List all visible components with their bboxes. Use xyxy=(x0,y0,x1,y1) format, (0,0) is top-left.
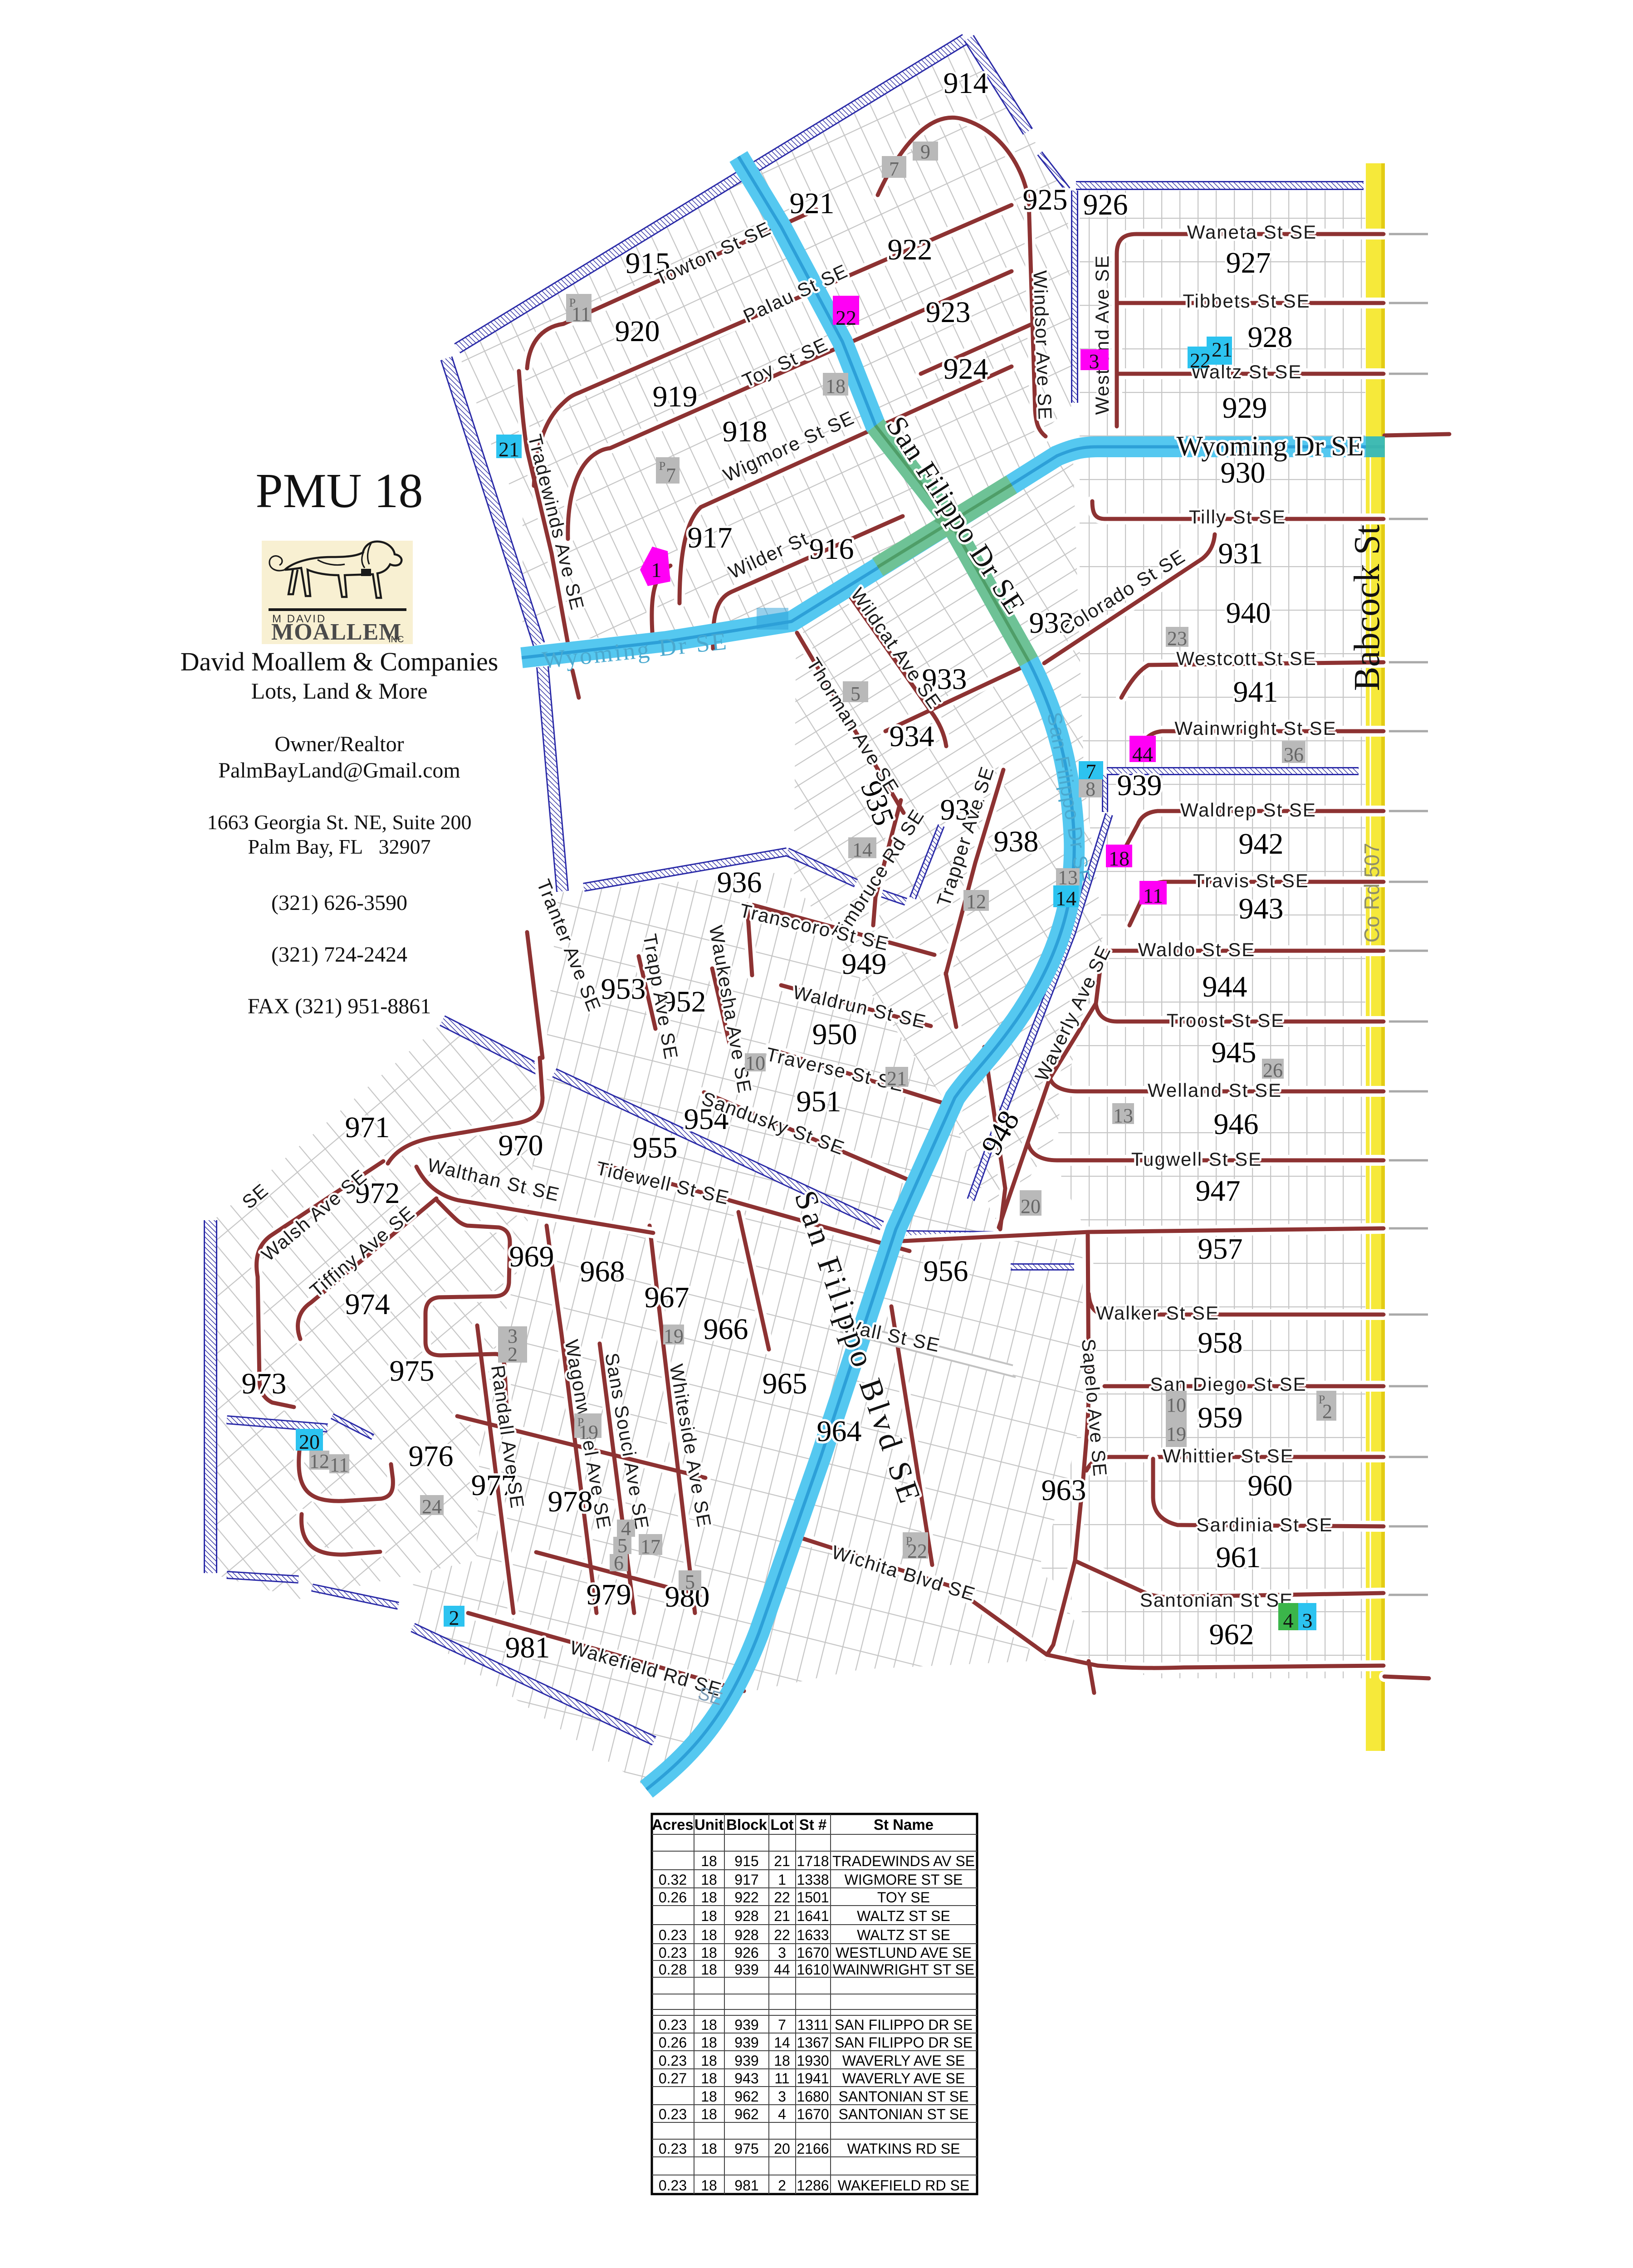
svg-text:2166: 2166 xyxy=(797,2141,829,2157)
svg-text:18: 18 xyxy=(701,1945,717,1961)
svg-text:0.28: 0.28 xyxy=(659,1961,687,1978)
svg-text:939: 939 xyxy=(734,2034,758,2051)
svg-text:18: 18 xyxy=(701,1889,717,1906)
svg-text:962: 962 xyxy=(734,2088,758,2105)
svg-text:1680: 1680 xyxy=(797,2088,829,2105)
svg-text:21: 21 xyxy=(1212,338,1232,361)
svg-text:1633: 1633 xyxy=(797,1927,829,1943)
svg-text:Tugwell St SE: Tugwell St SE xyxy=(1131,1149,1262,1170)
svg-text:Unit: Unit xyxy=(694,1816,724,1833)
svg-text:Whittier St SE: Whittier St SE xyxy=(1163,1445,1294,1466)
svg-text:973: 973 xyxy=(242,1367,287,1400)
svg-text:4: 4 xyxy=(1283,1609,1294,1632)
svg-text:18: 18 xyxy=(701,2088,717,2105)
svg-text:WAINWRIGHT ST SE: WAINWRIGHT ST SE xyxy=(833,1961,974,1978)
svg-text:Lots, Land & More: Lots, Land & More xyxy=(251,678,428,704)
svg-text:13: 13 xyxy=(1113,1105,1133,1127)
svg-text:1501: 1501 xyxy=(797,1889,829,1906)
svg-text:2: 2 xyxy=(778,2177,786,2194)
svg-text:14: 14 xyxy=(852,839,872,861)
svg-text:969: 969 xyxy=(509,1240,554,1273)
svg-text:Walker St SE: Walker St SE xyxy=(1096,1302,1219,1324)
svg-text:24: 24 xyxy=(422,1496,442,1518)
svg-text:1610: 1610 xyxy=(797,1961,829,1978)
svg-text:1670: 1670 xyxy=(797,1945,829,1961)
svg-text:0.23: 0.23 xyxy=(659,2017,687,2033)
svg-text:Lot: Lot xyxy=(770,1816,793,1833)
svg-text:0.23: 0.23 xyxy=(659,2177,687,2194)
svg-text:1641: 1641 xyxy=(797,1908,829,1924)
svg-text:957: 957 xyxy=(1198,1232,1243,1266)
svg-text:36: 36 xyxy=(1284,743,1304,766)
svg-text:928: 928 xyxy=(734,1927,758,1943)
svg-text:MOALLEM: MOALLEM xyxy=(271,619,401,645)
svg-text:915: 915 xyxy=(734,1853,758,1869)
svg-text:943: 943 xyxy=(734,2070,758,2087)
svg-text:Travis St SE: Travis St SE xyxy=(1193,870,1309,891)
svg-text:942: 942 xyxy=(1239,827,1284,860)
svg-text:WESTLUND AVE SE: WESTLUND AVE SE xyxy=(836,1945,972,1961)
svg-text:10: 10 xyxy=(745,1052,765,1074)
svg-text:961: 961 xyxy=(1216,1541,1261,1574)
svg-text:2: 2 xyxy=(1322,1400,1332,1422)
svg-text:11: 11 xyxy=(330,1454,349,1476)
svg-text:FAX (321) 951-8861: FAX (321) 951-8861 xyxy=(248,994,431,1018)
svg-text:22: 22 xyxy=(1190,349,1211,372)
svg-text:0.26: 0.26 xyxy=(659,2034,687,2051)
svg-text:21: 21 xyxy=(774,1908,790,1924)
svg-text:981: 981 xyxy=(734,2177,758,2194)
svg-text:22: 22 xyxy=(774,1889,790,1906)
svg-text:0.23: 0.23 xyxy=(659,2106,687,2122)
svg-text:18: 18 xyxy=(701,2017,717,2033)
svg-text:Waneta St SE: Waneta St SE xyxy=(1187,221,1317,243)
svg-text:P: P xyxy=(659,459,665,473)
svg-text:940: 940 xyxy=(1226,596,1271,630)
svg-text:955: 955 xyxy=(633,1131,678,1164)
svg-text:1: 1 xyxy=(651,558,662,582)
svg-text:926: 926 xyxy=(1083,188,1128,221)
svg-text:1338: 1338 xyxy=(797,1872,829,1888)
svg-text:5: 5 xyxy=(851,683,861,705)
svg-text:2: 2 xyxy=(449,1606,460,1629)
svg-text:938: 938 xyxy=(994,825,1039,858)
svg-text:951: 951 xyxy=(797,1085,841,1118)
svg-text:WAVERLY AVE SE: WAVERLY AVE SE xyxy=(842,2053,965,2069)
svg-text:928: 928 xyxy=(734,1908,758,1924)
svg-text:19: 19 xyxy=(578,1421,598,1443)
svg-text:0.23: 0.23 xyxy=(659,2053,687,2069)
svg-text:SANTONIAN ST SE: SANTONIAN ST SE xyxy=(839,2106,969,2122)
svg-text:Owner/Realtor: Owner/Realtor xyxy=(274,732,404,756)
svg-text:3: 3 xyxy=(778,2088,786,2105)
svg-text:SAN FILIPPO DR SE: SAN FILIPPO DR SE xyxy=(835,2034,973,2051)
svg-text:966: 966 xyxy=(704,1313,748,1346)
svg-text:971: 971 xyxy=(345,1111,390,1144)
svg-text:26: 26 xyxy=(1263,1059,1283,1081)
svg-text:18: 18 xyxy=(701,2106,717,2122)
svg-text:18: 18 xyxy=(701,1961,717,1978)
svg-text:917: 917 xyxy=(688,521,733,554)
svg-text:18: 18 xyxy=(701,2034,717,2051)
svg-text:18: 18 xyxy=(701,1908,717,1924)
svg-text:934: 934 xyxy=(890,720,934,753)
svg-text:44: 44 xyxy=(774,1961,790,1978)
svg-text:WALTZ ST SE: WALTZ ST SE xyxy=(857,1908,950,1924)
svg-text:1: 1 xyxy=(778,1872,786,1888)
svg-text:919: 919 xyxy=(653,380,698,413)
svg-text:960: 960 xyxy=(1248,1469,1293,1502)
svg-text:946: 946 xyxy=(1214,1108,1259,1141)
svg-text:947: 947 xyxy=(1196,1174,1241,1207)
svg-text:0.23: 0.23 xyxy=(659,1927,687,1943)
svg-text:6: 6 xyxy=(614,1552,624,1574)
svg-text:943: 943 xyxy=(1239,892,1284,925)
svg-text:1670: 1670 xyxy=(797,2106,829,2122)
svg-text:2: 2 xyxy=(508,1343,518,1365)
svg-text:23: 23 xyxy=(1167,627,1187,650)
svg-text:Palm Bay, FL 32907: Palm Bay, FL 32907 xyxy=(248,835,430,858)
svg-text:974: 974 xyxy=(345,1288,390,1321)
svg-text:18: 18 xyxy=(701,2053,717,2069)
svg-text:SANTONIAN ST SE: SANTONIAN ST SE xyxy=(839,2088,969,2105)
svg-text:8: 8 xyxy=(1085,778,1095,800)
svg-text:21: 21 xyxy=(774,1853,790,1869)
svg-text:921: 921 xyxy=(790,187,835,220)
svg-text:939: 939 xyxy=(734,2017,758,2033)
svg-text:WATKINS RD SE: WATKINS RD SE xyxy=(847,2141,960,2157)
svg-text:22: 22 xyxy=(836,306,856,329)
svg-text:19: 19 xyxy=(664,1325,684,1347)
svg-text:Westlund Ave SE: Westlund Ave SE xyxy=(1091,255,1113,415)
svg-text:PalmBayLand@Gmail.com: PalmBayLand@Gmail.com xyxy=(218,758,460,782)
svg-text:TRADEWINDS AV SE: TRADEWINDS AV SE xyxy=(832,1853,975,1869)
svg-text:1286: 1286 xyxy=(797,2177,829,2194)
svg-text:929: 929 xyxy=(1222,391,1267,425)
svg-text:18: 18 xyxy=(701,1927,717,1943)
svg-text:Troost St SE: Troost St SE xyxy=(1167,1010,1285,1031)
svg-text:(321) 626-3590: (321) 626-3590 xyxy=(271,891,407,915)
svg-text:925: 925 xyxy=(1023,183,1068,216)
svg-text:953: 953 xyxy=(601,973,646,1006)
svg-text:WAVERLY AVE SE: WAVERLY AVE SE xyxy=(842,2070,965,2087)
svg-text:976: 976 xyxy=(409,1440,454,1473)
svg-text:David Moallem & Companies: David Moallem & Companies xyxy=(181,647,499,676)
svg-text:TOY SE: TOY SE xyxy=(877,1889,930,1906)
svg-text:WALTZ ST SE: WALTZ ST SE xyxy=(857,1927,950,1943)
svg-text:978: 978 xyxy=(548,1485,593,1518)
svg-text:979: 979 xyxy=(587,1578,631,1611)
svg-text:18: 18 xyxy=(701,2141,717,2157)
svg-text:967: 967 xyxy=(645,1281,689,1314)
svg-text:Co Rd 507: Co Rd 507 xyxy=(1360,843,1384,943)
svg-text:936: 936 xyxy=(717,866,762,899)
svg-text:18: 18 xyxy=(701,1853,717,1869)
svg-text:22: 22 xyxy=(907,1540,927,1562)
svg-text:13: 13 xyxy=(1058,866,1078,889)
svg-text:Wainwright St SE: Wainwright St SE xyxy=(1174,718,1336,739)
svg-text:Block: Block xyxy=(726,1816,768,1833)
svg-text:11: 11 xyxy=(572,303,591,325)
svg-text:962: 962 xyxy=(1209,1618,1254,1651)
svg-text:965: 965 xyxy=(763,1367,807,1400)
svg-text:Babcock St: Babcock St xyxy=(1347,525,1387,691)
svg-text:18: 18 xyxy=(701,2177,717,2194)
svg-text:0.23: 0.23 xyxy=(659,2141,687,2157)
svg-text:Waldo St SE: Waldo St SE xyxy=(1138,939,1256,960)
svg-text:970: 970 xyxy=(499,1129,543,1162)
svg-text:923: 923 xyxy=(926,296,971,329)
svg-text:18: 18 xyxy=(774,2053,790,2069)
svg-text:916: 916 xyxy=(809,533,854,566)
svg-text:7: 7 xyxy=(778,2017,786,2033)
svg-text:964: 964 xyxy=(817,1415,862,1448)
svg-text:5: 5 xyxy=(685,1571,695,1593)
svg-text:939: 939 xyxy=(734,1961,758,1978)
svg-text:21: 21 xyxy=(499,438,519,461)
svg-text:918: 918 xyxy=(723,415,768,448)
svg-text:956: 956 xyxy=(924,1255,968,1288)
svg-text:927: 927 xyxy=(1226,246,1271,279)
svg-text:975: 975 xyxy=(734,2141,758,2157)
svg-text:Waldrep St SE: Waldrep St SE xyxy=(1180,799,1316,821)
svg-text:3: 3 xyxy=(1089,350,1100,373)
svg-text:Tilly St SE: Tilly St SE xyxy=(1189,506,1286,528)
svg-text:St #: St # xyxy=(799,1816,827,1833)
svg-text:945: 945 xyxy=(1212,1036,1257,1069)
svg-text:968: 968 xyxy=(580,1255,625,1288)
svg-text:21: 21 xyxy=(887,1067,907,1090)
svg-text:981: 981 xyxy=(505,1631,550,1664)
svg-text:950: 950 xyxy=(812,1018,857,1051)
svg-text:926: 926 xyxy=(734,1945,758,1961)
svg-text:INC: INC xyxy=(388,635,404,645)
svg-text:939: 939 xyxy=(1117,769,1162,802)
svg-text:10: 10 xyxy=(1166,1394,1186,1416)
svg-text:18: 18 xyxy=(1109,847,1129,870)
svg-text:44: 44 xyxy=(1132,743,1153,766)
svg-text:14: 14 xyxy=(1056,887,1076,910)
svg-text:22: 22 xyxy=(774,1927,790,1943)
svg-text:9: 9 xyxy=(920,141,930,163)
svg-text:1663 Georgia St. NE, Suite 200: 1663 Georgia St. NE, Suite 200 xyxy=(207,811,471,834)
svg-text:7: 7 xyxy=(889,158,899,180)
svg-text:20: 20 xyxy=(774,2141,790,2157)
svg-text:1941: 1941 xyxy=(797,2070,829,2087)
svg-text:939: 939 xyxy=(734,2053,758,2069)
svg-text:Wyoming Dr SE: Wyoming Dr SE xyxy=(1176,431,1364,462)
svg-text:PMU 18: PMU 18 xyxy=(255,464,423,518)
svg-text:7: 7 xyxy=(666,464,676,486)
svg-text:958: 958 xyxy=(1198,1326,1243,1359)
svg-text:Welland St SE: Welland St SE xyxy=(1148,1080,1282,1101)
svg-text:1718: 1718 xyxy=(797,1853,829,1869)
svg-text:959: 959 xyxy=(1198,1401,1243,1434)
svg-text:14: 14 xyxy=(774,2034,790,2051)
svg-text:18: 18 xyxy=(826,375,846,397)
svg-text:17: 17 xyxy=(640,1535,660,1558)
svg-text:12: 12 xyxy=(309,1450,329,1472)
svg-text:917: 917 xyxy=(734,1872,758,1888)
svg-text:11: 11 xyxy=(774,2070,789,2087)
svg-text:Acres: Acres xyxy=(652,1816,694,1833)
svg-text:Santonian St SE: Santonian St SE xyxy=(1140,1589,1293,1611)
svg-text:975: 975 xyxy=(390,1354,435,1388)
svg-text:18: 18 xyxy=(701,2070,717,2087)
svg-text:Sardinia St SE: Sardinia St SE xyxy=(1196,1514,1333,1535)
svg-text:944: 944 xyxy=(1203,970,1247,1003)
svg-text:WAKEFIELD RD SE: WAKEFIELD RD SE xyxy=(838,2177,969,2194)
svg-text:922: 922 xyxy=(734,1889,758,1906)
svg-text:1311: 1311 xyxy=(797,2017,829,2033)
svg-text:1367: 1367 xyxy=(797,2034,829,2051)
svg-text:0.23: 0.23 xyxy=(659,1945,687,1961)
svg-text:922: 922 xyxy=(888,233,933,266)
svg-text:SAN FILIPPO DR SE: SAN FILIPPO DR SE xyxy=(835,2017,973,2033)
svg-text:(321) 724-2424: (321) 724-2424 xyxy=(271,943,407,967)
svg-text:0.32: 0.32 xyxy=(659,1872,687,1888)
svg-text:0.27: 0.27 xyxy=(659,2070,687,2087)
svg-text:931: 931 xyxy=(1218,537,1263,570)
svg-text:962: 962 xyxy=(734,2106,758,2122)
svg-text:920: 920 xyxy=(615,315,660,348)
svg-text:963: 963 xyxy=(1041,1474,1086,1507)
svg-text:3: 3 xyxy=(1302,1609,1313,1632)
svg-text:Westcott St SE: Westcott St SE xyxy=(1176,648,1317,669)
svg-text:11: 11 xyxy=(1143,884,1163,907)
svg-text:18: 18 xyxy=(701,1872,717,1888)
svg-text:3: 3 xyxy=(778,1945,786,1961)
svg-text:19: 19 xyxy=(1166,1423,1186,1445)
svg-text:914: 914 xyxy=(944,67,988,100)
svg-text:941: 941 xyxy=(1233,675,1278,709)
svg-text:924: 924 xyxy=(944,352,988,386)
svg-text:0.26: 0.26 xyxy=(659,1889,687,1906)
svg-text:WIGMORE ST SE: WIGMORE ST SE xyxy=(845,1872,963,1888)
svg-text:12: 12 xyxy=(966,890,986,913)
svg-text:20: 20 xyxy=(1021,1195,1041,1217)
svg-text:928: 928 xyxy=(1248,321,1293,354)
svg-text:St Name: St Name xyxy=(874,1816,934,1833)
svg-text:1930: 1930 xyxy=(797,2053,829,2069)
svg-text:Tibbets St SE: Tibbets St SE xyxy=(1183,290,1310,312)
svg-text:4: 4 xyxy=(778,2106,786,2122)
